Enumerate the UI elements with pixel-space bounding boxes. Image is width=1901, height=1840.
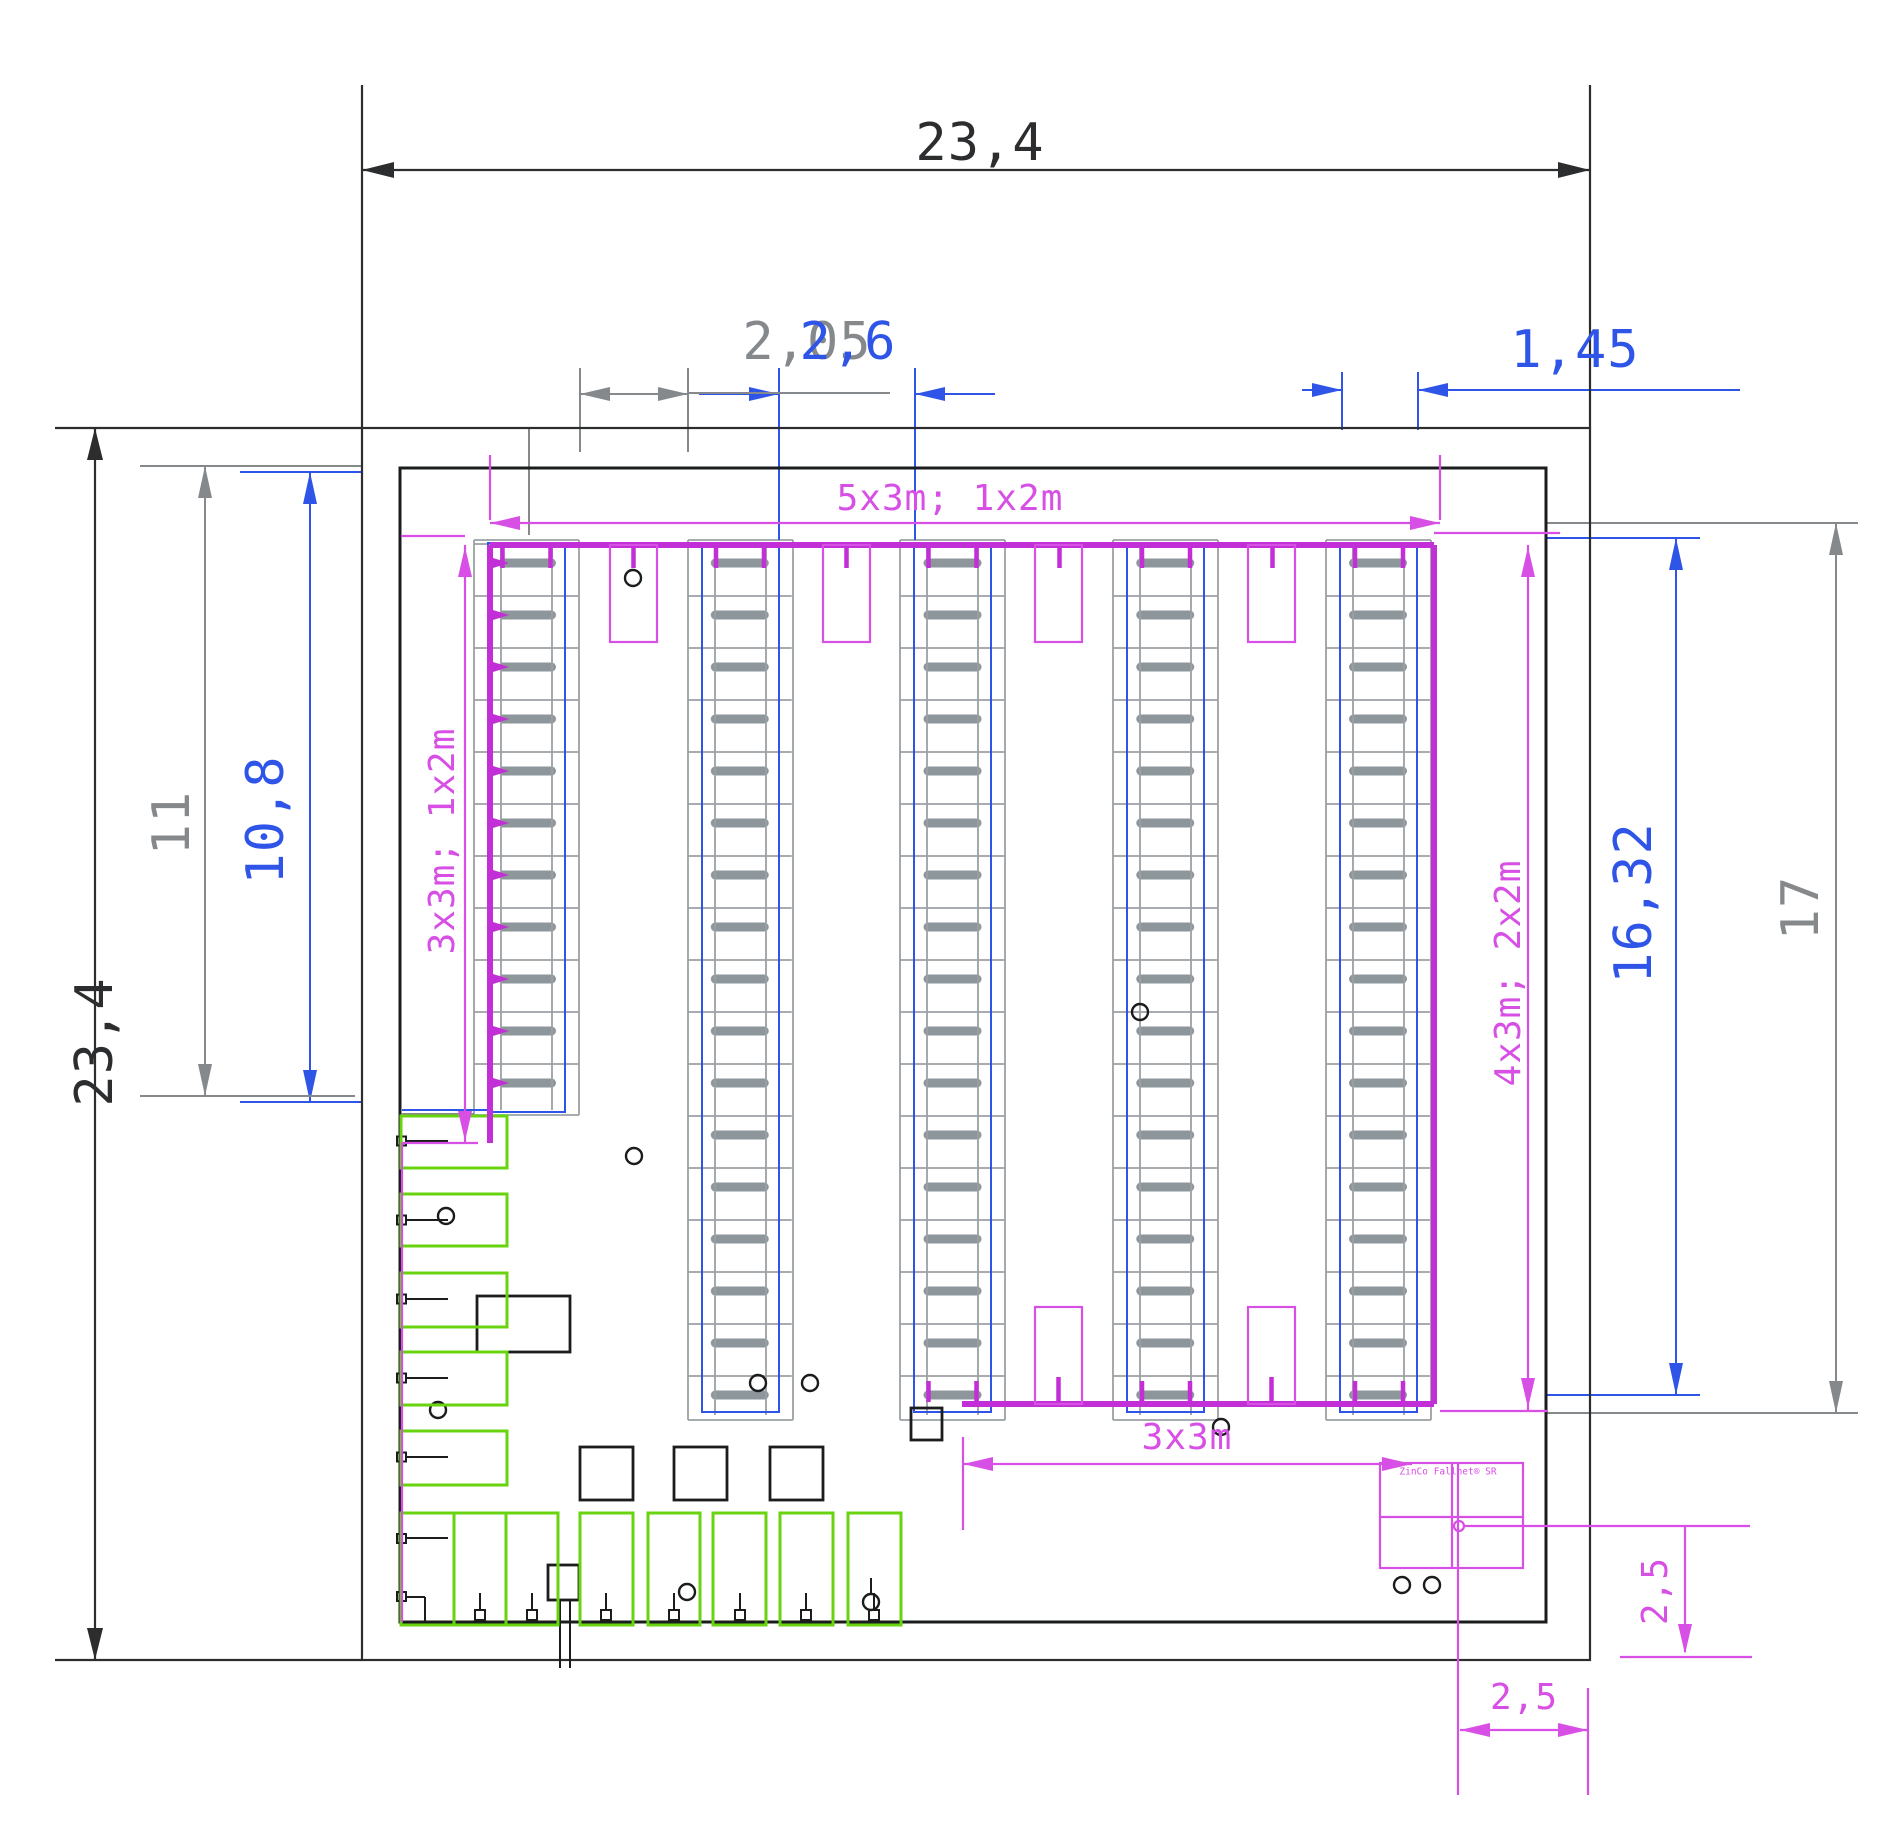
- dim-left-blue: 10,8: [240, 755, 292, 884]
- label-racks-left: 3x3m; 1x2m: [425, 728, 461, 955]
- dim-top-right: 1,45: [1510, 324, 1639, 376]
- dim-offset-horizontal: 2,5: [1490, 1680, 1558, 1716]
- door-symbols: [397, 1137, 879, 1624]
- floor-drain-pipe: [560, 1600, 570, 1668]
- label-fallnet-block: ZinCo Fallnet® SR: [1399, 1467, 1496, 1477]
- green-rooms: [401, 1116, 901, 1625]
- dim-right-gray: 17: [1775, 876, 1827, 941]
- floor-plan-canvas: 23,4 23,4 11 10,8 2,05 2,6 1,45 16,32 17…: [0, 0, 1901, 1840]
- dim-total-height: 23,4: [69, 977, 121, 1106]
- magenta-arrowheads: [458, 516, 1692, 1737]
- dim-offset-vertical: 2,5: [1638, 1557, 1674, 1625]
- label-racks-top: 5x3m; 1x2m: [837, 481, 1064, 517]
- dim-top-small-blue: 2,6: [800, 316, 897, 368]
- dim-left-gray: 11: [146, 791, 198, 856]
- label-racks-right: 4x3m; 2x2m: [1491, 860, 1527, 1087]
- magenta-dimensions: [401, 455, 1752, 1795]
- dim-total-width: 23,4: [915, 117, 1044, 169]
- rack-strips: [474, 540, 1431, 1420]
- fallnet-block: [1380, 1463, 1523, 1568]
- dim-span-bottom: 3x3m: [1142, 1420, 1233, 1456]
- dim-right-blue: 16,32: [1608, 822, 1660, 984]
